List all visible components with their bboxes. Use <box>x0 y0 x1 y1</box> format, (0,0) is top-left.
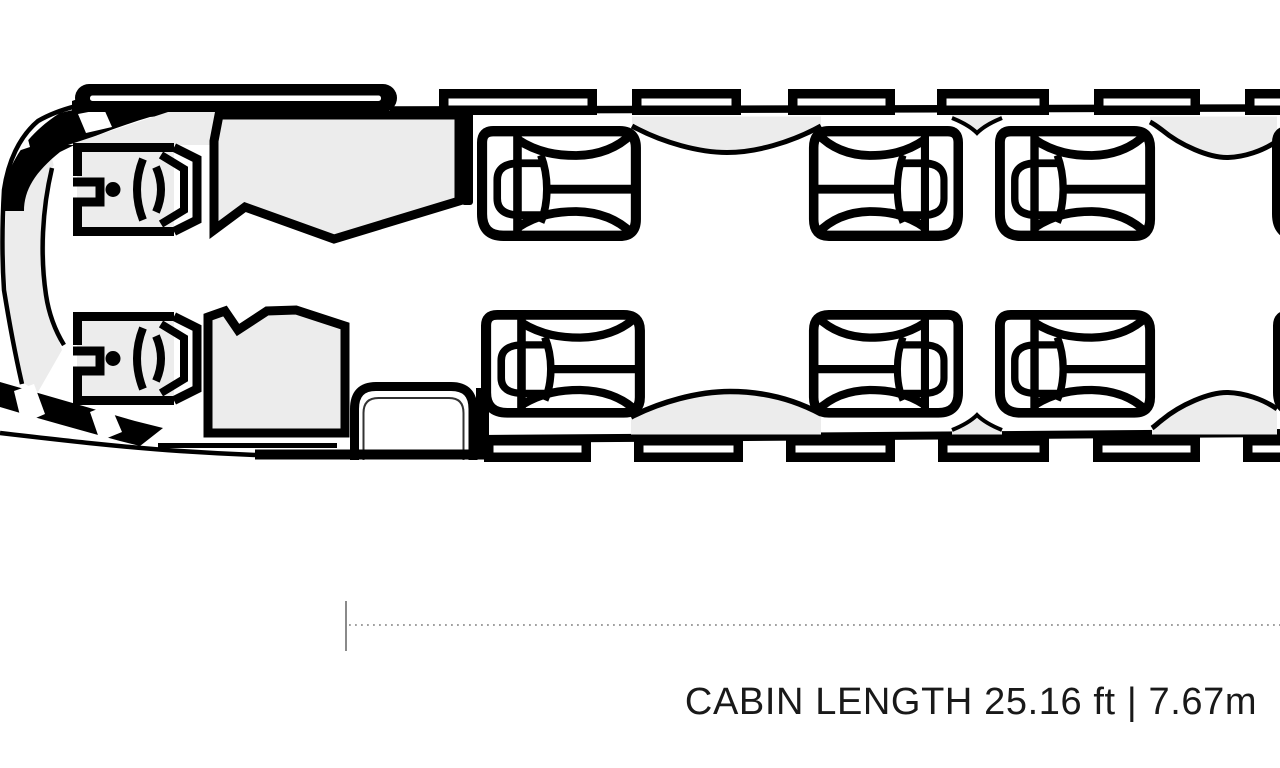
svg-text:CABIN LENGTH 25.16 ft | 7.67m: CABIN LENGTH 25.16 ft | 7.67m <box>685 681 1257 723</box>
